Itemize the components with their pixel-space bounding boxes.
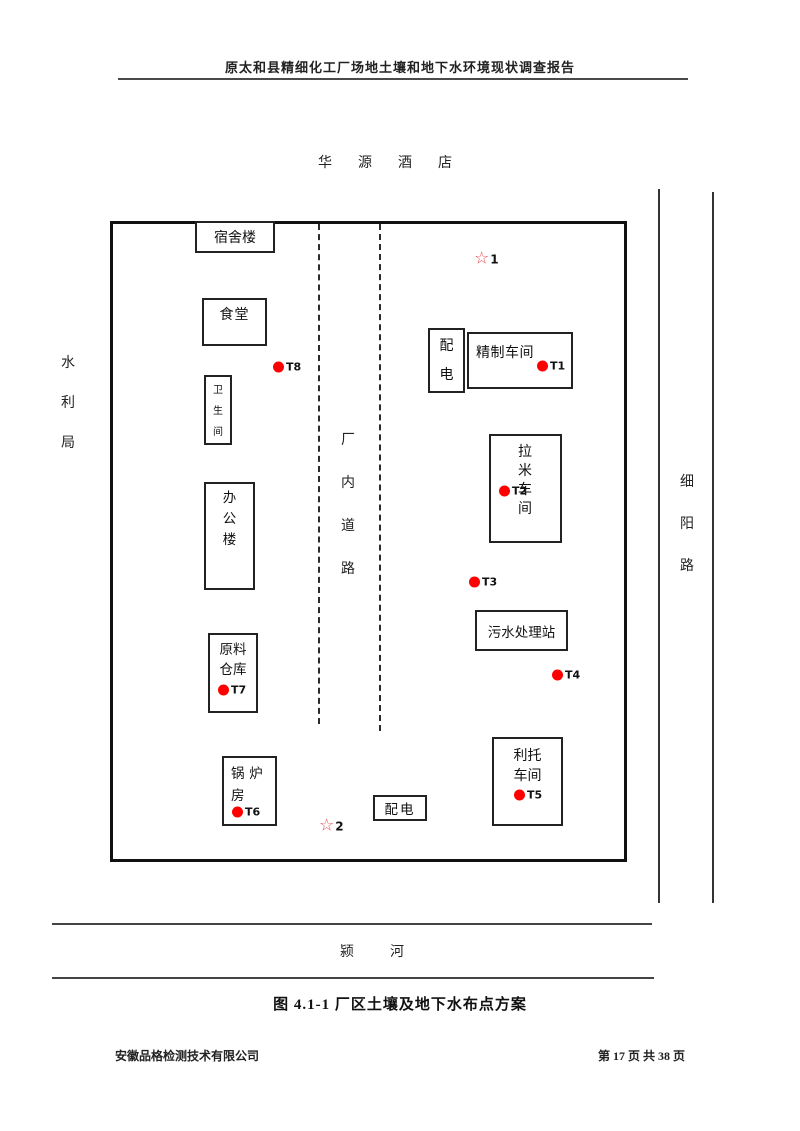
building-dormitory: 宿舍楼	[195, 221, 275, 253]
building-lituo-workshop: 利托车间	[492, 737, 563, 826]
sample-point-T2: T2	[499, 486, 527, 497]
building-canteen: 食堂	[202, 298, 267, 346]
sample-point-T6: T6	[232, 807, 260, 818]
building-label: 配电	[385, 798, 416, 818]
sample-dot-icon	[537, 361, 548, 372]
star-icon: ☆	[474, 251, 489, 268]
footer-company: 安徽品格检测技术有限公司	[115, 1047, 259, 1064]
building-label: 拉米车间	[512, 443, 540, 519]
east-road-line-inner	[658, 189, 660, 903]
east-road-line-outer	[712, 192, 714, 903]
star-icon: ☆	[319, 818, 334, 835]
sample-point-label: T4	[565, 670, 580, 681]
sample-point-label: T6	[245, 807, 260, 818]
sample-point-label: T2	[512, 486, 527, 497]
building-label: 原料仓库	[220, 640, 247, 680]
building-sewage-treatment-station: 污水处理站	[475, 610, 568, 651]
building-label: 污水处理站	[488, 621, 556, 641]
sample-point-label: T3	[482, 577, 497, 588]
sample-point-label: T7	[231, 685, 246, 696]
sample-point-label: T8	[286, 362, 301, 373]
building-office: 办公楼	[204, 482, 255, 590]
river-line-top	[52, 923, 652, 925]
star-point-1: ☆ 1	[474, 251, 499, 268]
building-restroom: 卫生间	[204, 375, 232, 445]
figure-caption: 图 4.1-1 厂区土壤及地下水布点方案	[0, 993, 800, 1014]
internal-road-dashed-line-right	[379, 224, 381, 731]
east-road-label: 细阳路	[680, 462, 694, 588]
header-rule	[118, 78, 688, 80]
document-header-title: 原太和县精细化工厂场地土壤和地下水环境现状调查报告	[0, 57, 800, 76]
footer-page-number: 第 17 页 共 38 页	[598, 1047, 685, 1064]
building-label: 配电	[440, 332, 454, 390]
building-raw-material-warehouse: 原料仓库	[208, 633, 258, 713]
star-point-label: 1	[490, 253, 498, 265]
star-point-label: 2	[335, 820, 343, 832]
sample-point-T1: T1	[537, 361, 565, 372]
building-label: 锅炉房	[231, 763, 269, 807]
river-line-bottom	[52, 977, 654, 979]
west-neighbor-label: 水利局	[61, 344, 75, 464]
sample-dot-icon	[552, 670, 563, 681]
building-label: 食堂	[204, 304, 265, 324]
sample-point-T7: T7	[218, 685, 246, 696]
building-power-distribution-bottom: 配电	[373, 795, 427, 821]
internal-road-label: 厂内道路	[341, 419, 355, 591]
building-power-distribution-top: 配电	[428, 328, 465, 393]
building-label: 卫生间	[213, 380, 223, 443]
sample-dot-icon	[499, 486, 510, 497]
sample-point-T8: T8	[273, 362, 301, 373]
sample-point-T4: T4	[552, 670, 580, 681]
sample-dot-icon	[273, 362, 284, 373]
sample-dot-icon	[232, 807, 243, 818]
north-neighbor-label: 华源酒店	[318, 152, 478, 172]
internal-road-dashed-line-left	[318, 224, 320, 724]
sample-point-T5: T5	[514, 790, 542, 801]
building-label: 宿舍楼	[214, 227, 256, 247]
south-river-label: 颍河	[340, 941, 440, 961]
building-label: 利托车间	[514, 747, 542, 787]
sample-dot-icon	[514, 790, 525, 801]
sample-point-label: T5	[527, 790, 542, 801]
sample-point-T3: T3	[469, 577, 497, 588]
sample-dot-icon	[469, 577, 480, 588]
page-footer: 安徽品格检测技术有限公司 第 17 页 共 38 页	[115, 1047, 685, 1064]
report-page: 原太和县精细化工厂场地土壤和地下水环境现状调查报告 华源酒店 水利局 细阳路 厂…	[0, 0, 800, 1131]
star-point-2: ☆ 2	[319, 818, 344, 835]
building-label: 办公楼	[223, 487, 237, 550]
sample-dot-icon	[218, 685, 229, 696]
sample-point-label: T1	[550, 361, 565, 372]
